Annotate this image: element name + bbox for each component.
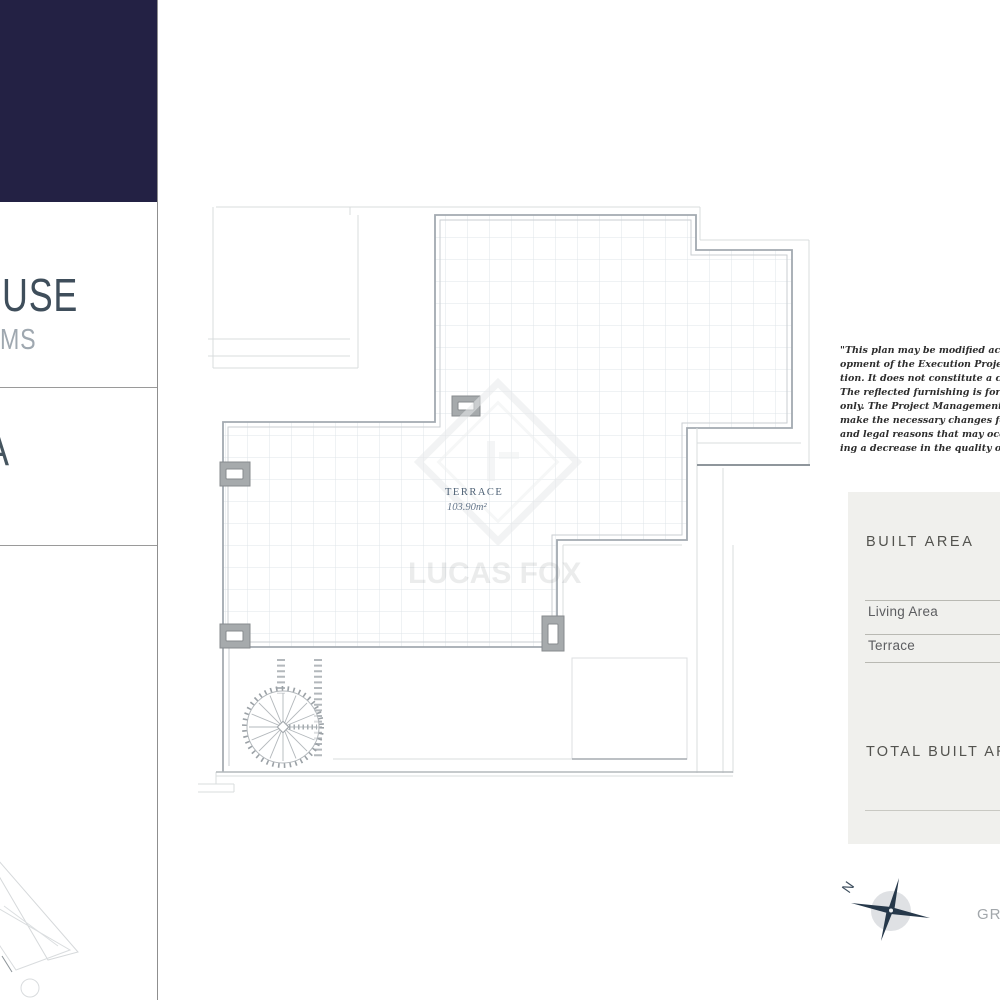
disclaimer-line: "This plan may be modified according: [840, 344, 1000, 358]
spiral-staircase: [245, 689, 322, 766]
section-title-fragment: A: [0, 424, 9, 476]
sidebar: USE MS A: [0, 0, 158, 1000]
card-divider: [865, 634, 1000, 635]
brochure-page: LUCAS FOX TERRACE 103.90m² N "This plan …: [0, 0, 1000, 1000]
card-divider: [865, 810, 1000, 811]
compass-rose: N: [838, 878, 930, 941]
disclaimer-line: opment of the Execution Project and: [840, 358, 1000, 372]
disclaimer-line: tion. It does not constitute a contractu: [840, 372, 1000, 386]
vent-left-upper: [220, 462, 250, 486]
disclaimer-line: make the necessary changes for func: [840, 414, 1000, 428]
area-row-terrace: Terrace: [868, 638, 915, 653]
total-built-area-label: TOTAL BUILT AREA.: [866, 744, 1000, 760]
property-title-fragment: USE: [2, 268, 78, 322]
disclaimer-line: ing a decrease in the quality of the: [840, 442, 1000, 456]
vent-left-lower: [220, 624, 250, 648]
plan-caption-fragment: GR: [977, 906, 1000, 923]
built-area-card: BUILT AREA Living Area Terrace TOTAL BUI…: [848, 492, 1000, 844]
built-area-title: BUILT AREA: [866, 534, 974, 550]
room-label: TERRACE: [445, 487, 503, 498]
vent-bottom-right: [542, 616, 564, 651]
watermark-text: LUCAS FOX: [408, 557, 581, 590]
property-subtitle-fragment: MS: [0, 324, 36, 357]
area-row-living: Living Area: [868, 604, 938, 619]
disclaimer-line: and legal reasons that may occur,: [840, 428, 1000, 442]
room-area-value: 103.90m²: [447, 502, 487, 513]
card-divider: [865, 662, 1000, 663]
disclaimer-line: The reflected furnishing is for decorat: [840, 386, 1000, 400]
disclaimer-text: "This plan may be modified according opm…: [840, 344, 1000, 456]
brand-color-block: [0, 0, 157, 202]
card-divider: [865, 600, 1000, 601]
sidebar-divider: [0, 545, 157, 546]
disclaimer-line: only. The Project Management reser: [840, 400, 1000, 414]
sidebar-divider: [0, 387, 157, 388]
compass-north-label: N: [838, 878, 857, 895]
